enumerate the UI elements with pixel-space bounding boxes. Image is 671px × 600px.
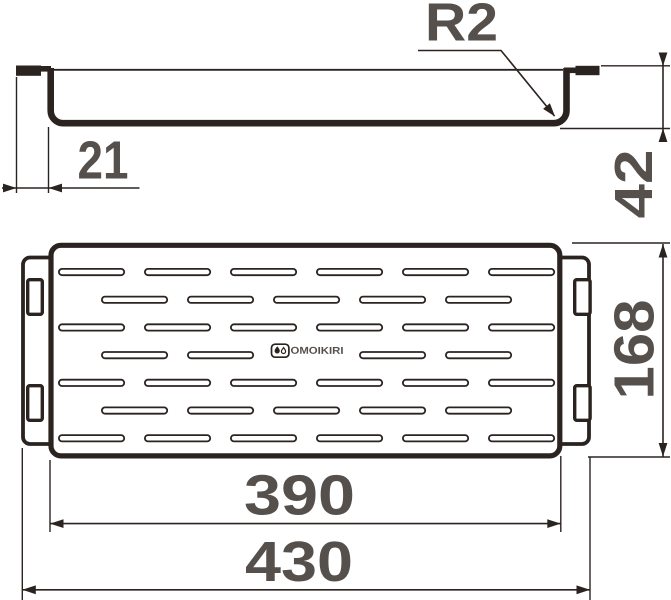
svg-text:390: 390 bbox=[244, 464, 355, 528]
svg-text:430: 430 bbox=[245, 530, 353, 594]
svg-text:168: 168 bbox=[603, 300, 667, 400]
svg-text:21: 21 bbox=[78, 131, 129, 191]
svg-text:OMOIKIRI: OMOIKIRI bbox=[290, 346, 343, 357]
svg-text:42: 42 bbox=[604, 150, 664, 219]
svg-text:R2: R2 bbox=[425, 0, 498, 53]
